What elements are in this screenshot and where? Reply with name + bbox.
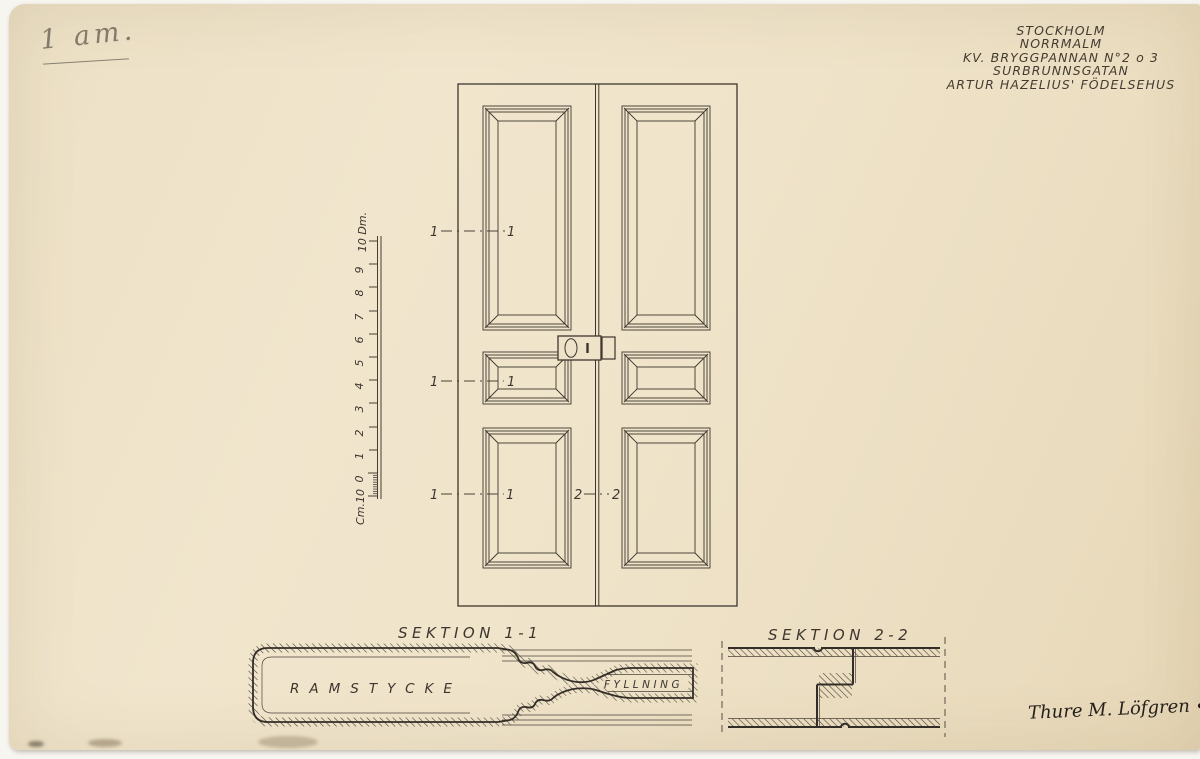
door-panel-right-bottom: [622, 428, 710, 568]
cut-label-1: 1: [430, 225, 438, 240]
cut-label-1: 1: [507, 225, 515, 240]
ruler-number: 5: [353, 360, 366, 367]
ruler-unit-bottom: Cm.10: [354, 489, 367, 525]
ruler-number: 3: [353, 406, 366, 413]
ruler-number: 2: [353, 430, 366, 437]
cut-label-1: 1: [507, 375, 515, 390]
door-lock: [558, 336, 615, 360]
ruler-number: 0: [353, 476, 366, 483]
ruler-number: 6: [353, 337, 366, 344]
cut-label-1: 1: [430, 488, 438, 503]
drawing-canvas: 0 1 2 3 4 5 6 7 8 9 10 Dm. Cm.10: [0, 0, 1200, 759]
scale-ruler-labels: 0 1 2 3 4 5 6 7 8 9 10 Dm. Cm.10: [353, 212, 369, 525]
cut-label-2: 2: [574, 488, 582, 503]
scale-ruler: [368, 236, 381, 499]
door-panel-left-top: [483, 106, 571, 330]
ruler-number: 9: [353, 267, 366, 274]
ruler-number: 7: [353, 314, 366, 321]
section-2-title: SEKTION 2-2: [768, 626, 912, 644]
section-2-drawing: [722, 637, 945, 737]
section-1-title: SEKTION 1-1: [398, 624, 542, 642]
ruler-number: 1: [353, 453, 366, 460]
door-panel-left-bottom: [483, 428, 571, 568]
ruler-number: 8: [353, 290, 366, 297]
cut-label-1: 1: [430, 375, 438, 390]
cut-label-2: 2: [612, 488, 620, 503]
ramstycke-label: RAMSTYCKE: [290, 681, 462, 697]
cut-lines: [441, 231, 609, 494]
door-panel-right-middle: [622, 352, 710, 404]
fyllning-label: FYLLNING: [604, 679, 683, 691]
ruler-number: 4: [353, 383, 366, 390]
door-elevation: [458, 84, 737, 606]
cut-label-1: 1: [506, 488, 514, 503]
ruler-unit-top: 10 Dm.: [356, 212, 369, 252]
door-panel-right-top: [622, 106, 710, 330]
